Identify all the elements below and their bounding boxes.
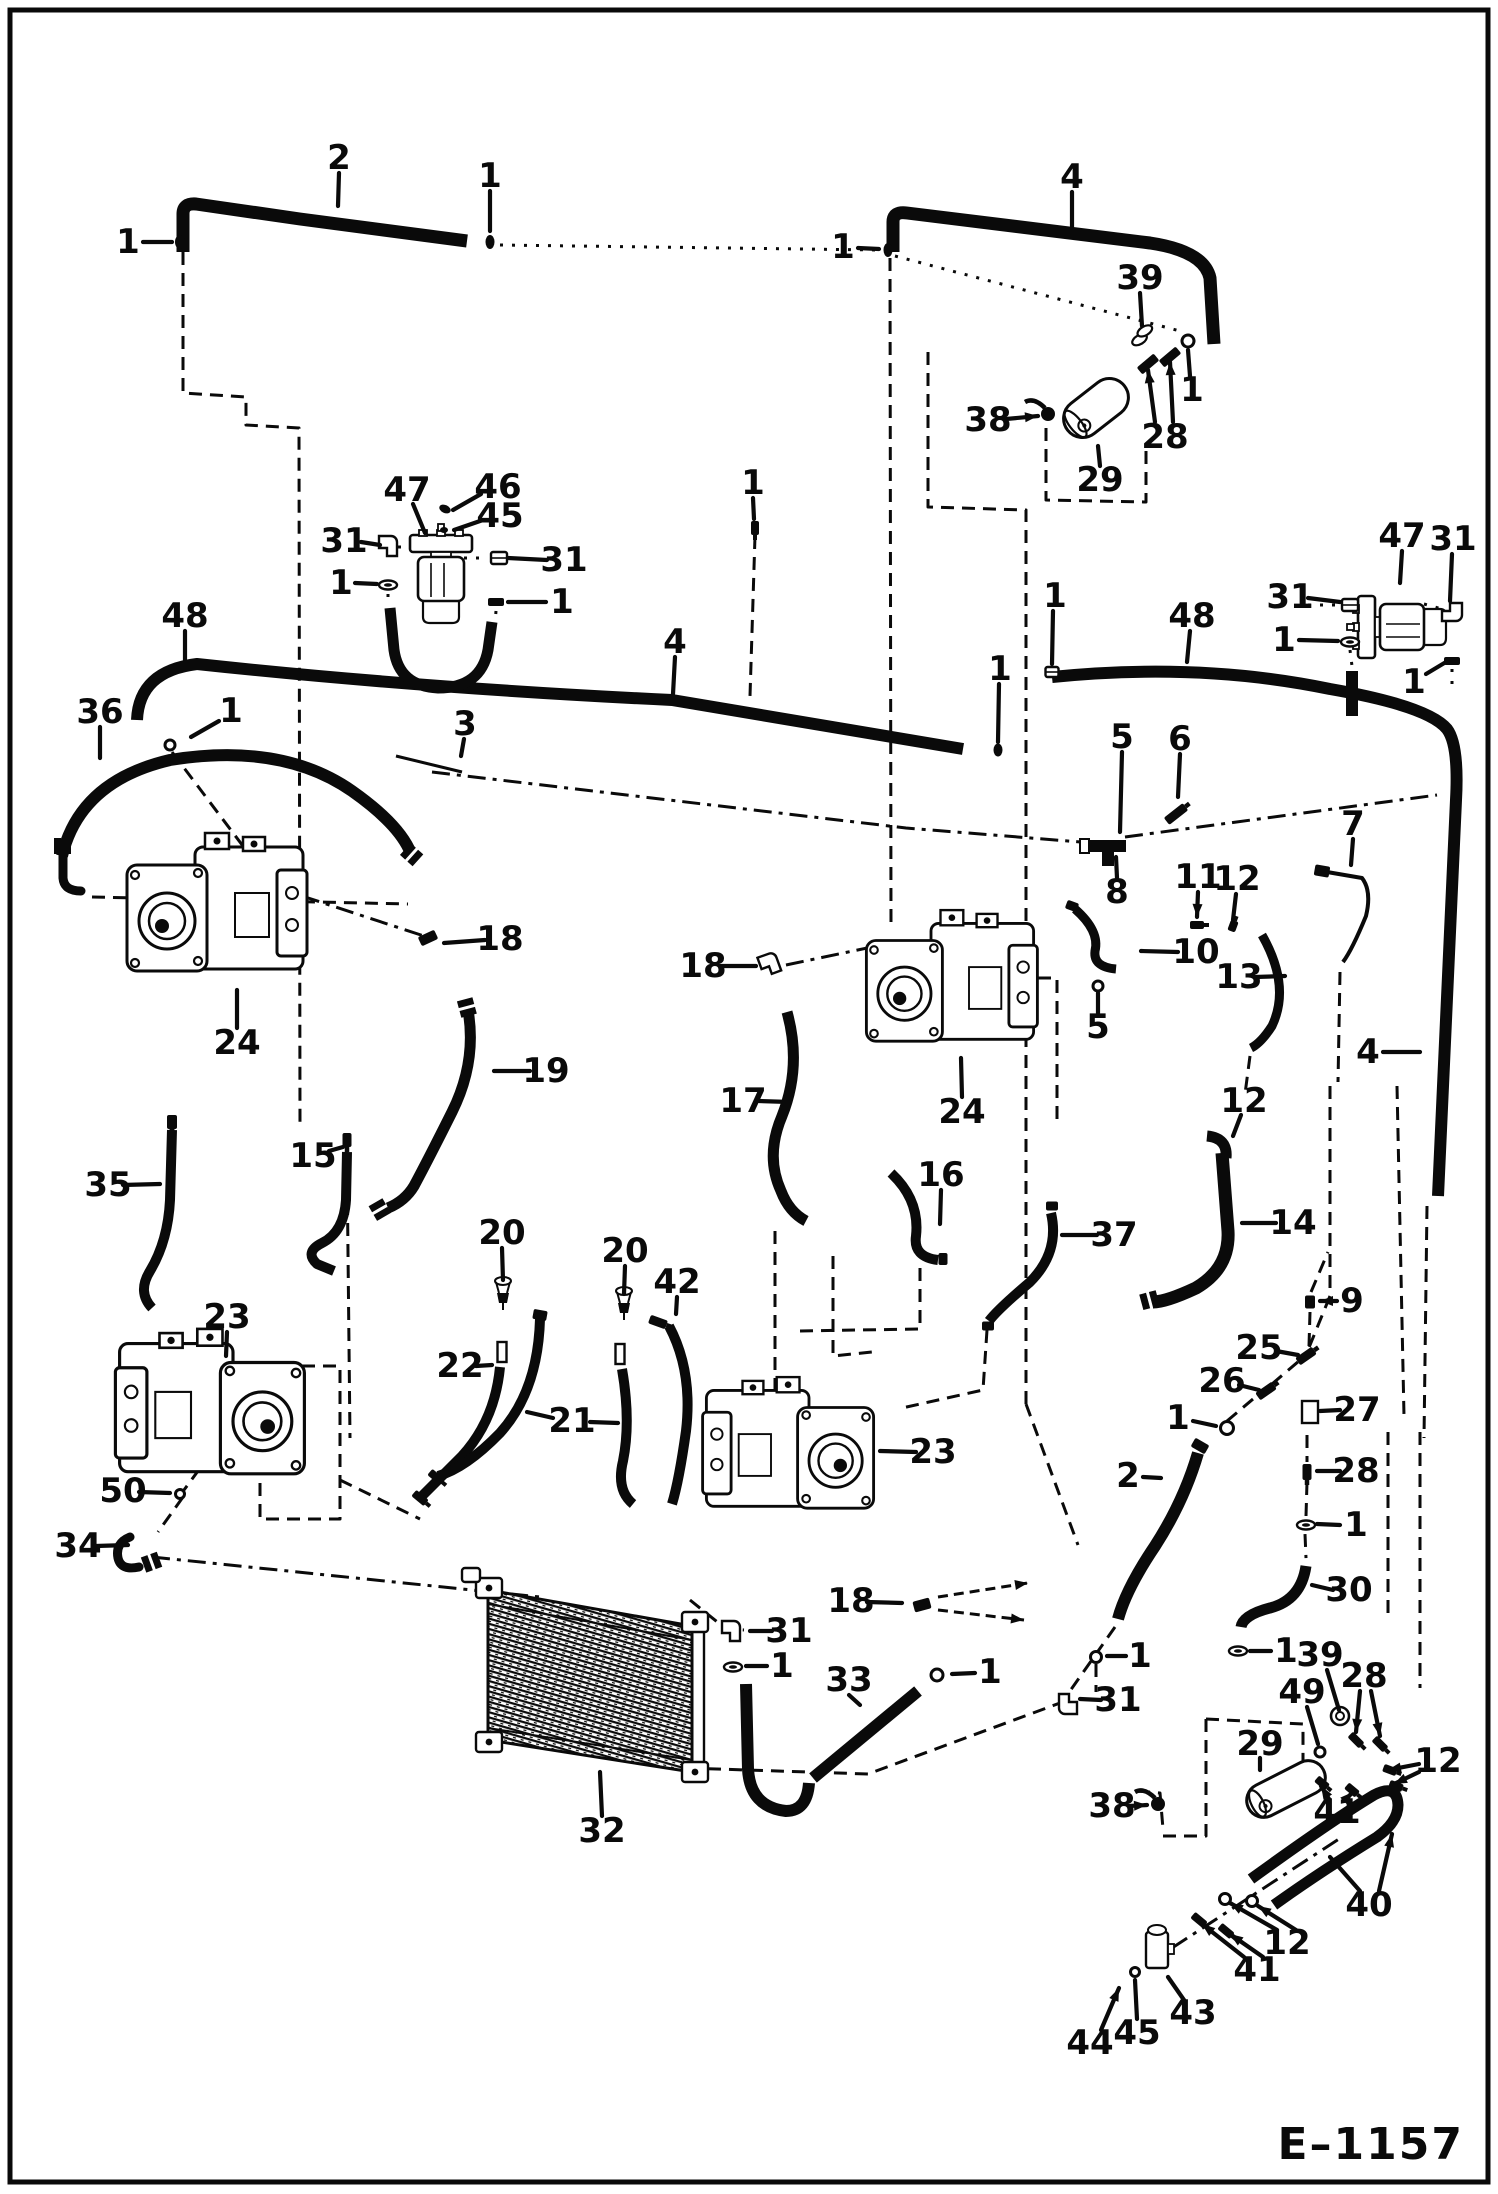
callout-39: 39: [1116, 258, 1163, 298]
nut-fitting: [418, 930, 439, 947]
nut-fitting: [488, 598, 504, 606]
callout-24: 24: [213, 1023, 260, 1063]
callout-48: 48: [1168, 596, 1215, 636]
callout-18: 18: [679, 946, 726, 986]
callout-1: 1: [1128, 1636, 1152, 1676]
hydrostatic-pump: [703, 1377, 874, 1508]
callout-41: 41: [1233, 1950, 1280, 1990]
callout-4: 4: [1356, 1032, 1380, 1072]
callout-45: 45: [1113, 2013, 1160, 2053]
callout-44: 44: [1066, 2023, 1113, 2063]
washer: [379, 581, 397, 590]
callout-38: 38: [964, 400, 1011, 440]
callout-47: 47: [383, 470, 430, 510]
callout-18: 18: [827, 1581, 874, 1621]
o-ring: [165, 740, 175, 750]
callout-38: 38: [1088, 1786, 1135, 1826]
callout-29: 29: [1076, 460, 1123, 500]
nut-fitting: [1305, 1296, 1315, 1309]
o-ring: [1180, 333, 1195, 348]
callout-49: 49: [1278, 1672, 1325, 1712]
callout-40: 40: [1345, 1885, 1392, 1925]
callout-24: 24: [938, 1092, 985, 1132]
callout-26: 26: [1198, 1361, 1245, 1401]
o-ring: [1131, 1968, 1140, 1977]
callout-31: 31: [540, 540, 587, 580]
nut-fitting: [1314, 864, 1331, 877]
washer: [724, 1663, 742, 1672]
washer: [1341, 638, 1359, 647]
callout-41: 41: [1313, 1792, 1360, 1832]
callout-22: 22: [436, 1346, 483, 1386]
callout-17: 17: [719, 1081, 766, 1121]
callout-14: 14: [1269, 1203, 1316, 1243]
callout-2: 2: [327, 138, 351, 178]
callout-28: 28: [1340, 1656, 1387, 1696]
nut-fitting: [1046, 1202, 1058, 1211]
hydraulic-filter: [410, 524, 472, 623]
connector-dot: [486, 235, 495, 249]
elbow-fitting: [722, 1621, 740, 1641]
callout-27: 27: [1333, 1390, 1380, 1430]
nut-fitting: [912, 1597, 931, 1612]
callout-36: 36: [76, 692, 123, 732]
coupler: [1302, 1401, 1318, 1423]
callout-42: 42: [653, 1262, 700, 1302]
hydrostatic-pump: [115, 1329, 304, 1474]
bolt-fitting: [343, 1133, 352, 1152]
callout-30: 30: [1325, 1570, 1372, 1610]
callout-1: 1: [329, 563, 353, 603]
bolt-fitting: [1348, 1732, 1369, 1753]
connector-dot: [440, 527, 448, 533]
callout-28: 28: [1332, 1451, 1379, 1491]
callout-50: 50: [99, 1471, 146, 1511]
callout-1: 1: [1402, 662, 1426, 702]
o-ring: [1247, 1896, 1258, 1907]
callout-3: 3: [453, 704, 477, 744]
callout-32: 32: [578, 1811, 625, 1851]
nut-fitting: [982, 1322, 994, 1331]
elbow-fitting: [1059, 1694, 1077, 1714]
hydraulic-parts-diagram-canvas: 1211439128293847464531311148361341114847…: [0, 0, 1498, 2194]
callout-12: 12: [1414, 1741, 1461, 1781]
connector-dot: [884, 243, 893, 257]
callout-5: 5: [1086, 1007, 1110, 1047]
hydrostatic-pump: [127, 833, 307, 971]
callout-31: 31: [320, 521, 367, 561]
callout-8: 8: [1105, 872, 1129, 912]
callout-1: 1: [1166, 1398, 1190, 1438]
tee-fitting: [1080, 839, 1126, 866]
callout-18: 18: [476, 919, 523, 959]
valve-body: [1146, 1925, 1174, 1968]
union-fitting: [1342, 599, 1358, 611]
o-ring: [1093, 981, 1103, 991]
callout-5: 5: [1110, 717, 1134, 757]
elbow-fitting: [1442, 603, 1462, 621]
bolt-fitting: [1190, 921, 1209, 929]
callout-34: 34: [54, 1526, 101, 1566]
callout-1: 1: [741, 463, 765, 503]
callout-35: 35: [84, 1165, 131, 1205]
hose-collar: [369, 1198, 391, 1221]
callout-4: 4: [663, 622, 687, 662]
callout-1: 1: [770, 1646, 794, 1686]
callout-43: 43: [1169, 1993, 1216, 2033]
bolt-fitting: [1164, 800, 1192, 825]
callout-31: 31: [765, 1611, 812, 1651]
callout-20: 20: [601, 1231, 648, 1271]
callout-48: 48: [161, 596, 208, 636]
coupler: [616, 1344, 625, 1364]
callout-1: 1: [478, 156, 502, 196]
callout-9: 9: [1340, 1281, 1364, 1321]
o-ring: [1091, 1652, 1102, 1663]
callout-6: 6: [1168, 719, 1192, 759]
callout-1: 1: [978, 1652, 1002, 1692]
callout-31: 31: [1429, 519, 1476, 559]
callout-1: 1: [831, 227, 855, 267]
callout-1: 1: [550, 582, 574, 622]
callout-4: 4: [1060, 157, 1084, 197]
washer: [1297, 1521, 1315, 1530]
hydrostatic-pump: [866, 910, 1037, 1041]
o-ring: [176, 1490, 185, 1499]
bolt-fitting: [751, 521, 759, 540]
coupler: [498, 1342, 507, 1362]
callout-39: 39: [1296, 1635, 1343, 1675]
callout-1: 1: [1344, 1505, 1368, 1545]
callout-23: 23: [909, 1432, 956, 1472]
parts-diagram-page: 1211439128293847464531311148361341114847…: [0, 0, 1498, 2194]
o-ring: [1221, 1422, 1234, 1435]
callout-29: 29: [1236, 1724, 1283, 1764]
elbow-fitting: [757, 952, 781, 977]
callout-31: 31: [1266, 577, 1313, 617]
nut-fitting: [939, 1253, 948, 1265]
callout-31: 31: [1094, 1680, 1141, 1720]
o-ring: [931, 1669, 943, 1681]
union-fitting: [1046, 667, 1059, 677]
bolt-fitting: [1303, 1464, 1312, 1485]
oil-cooler: [462, 1568, 708, 1782]
nut-fitting: [532, 1309, 548, 1321]
callout-23: 23: [203, 1297, 250, 1337]
accumulator-cylinder: [1056, 371, 1136, 445]
callout-33: 33: [825, 1660, 872, 1700]
callout-1: 1: [988, 649, 1012, 689]
hose-collar: [141, 1552, 162, 1573]
callout-1: 1: [1274, 1631, 1298, 1671]
callout-45: 45: [476, 496, 523, 536]
callout-13: 13: [1215, 957, 1262, 997]
callout-1: 1: [116, 222, 140, 262]
washer: [1229, 1647, 1247, 1656]
callout-2: 2: [1116, 1456, 1140, 1496]
hydraulic-filter: [1347, 596, 1446, 658]
callout-15: 15: [289, 1136, 336, 1176]
callout-28: 28: [1141, 417, 1188, 457]
bolt-fitting: [1372, 1736, 1393, 1757]
callout-16: 16: [917, 1155, 964, 1195]
connector-dot: [994, 744, 1003, 757]
callout-47: 47: [1378, 516, 1425, 556]
callout-12: 12: [1213, 859, 1260, 899]
callout-20: 20: [478, 1213, 525, 1253]
callout-7: 7: [1341, 804, 1365, 844]
callout-1: 1: [1272, 620, 1296, 660]
callout-21: 21: [548, 1401, 595, 1441]
callout-37: 37: [1090, 1215, 1137, 1255]
connector-dot: [175, 235, 185, 249]
connector-dot: [438, 503, 452, 515]
callout-10: 10: [1172, 932, 1219, 972]
o-ring: [1315, 1747, 1325, 1757]
callout-1: 1: [1180, 370, 1204, 410]
callout-1: 1: [1043, 576, 1067, 616]
figure-code: E–1157: [1277, 2119, 1464, 2170]
callout-12: 12: [1220, 1081, 1267, 1121]
callout-1: 1: [219, 691, 243, 731]
union-fitting: [491, 552, 507, 564]
callout-19: 19: [522, 1051, 569, 1091]
